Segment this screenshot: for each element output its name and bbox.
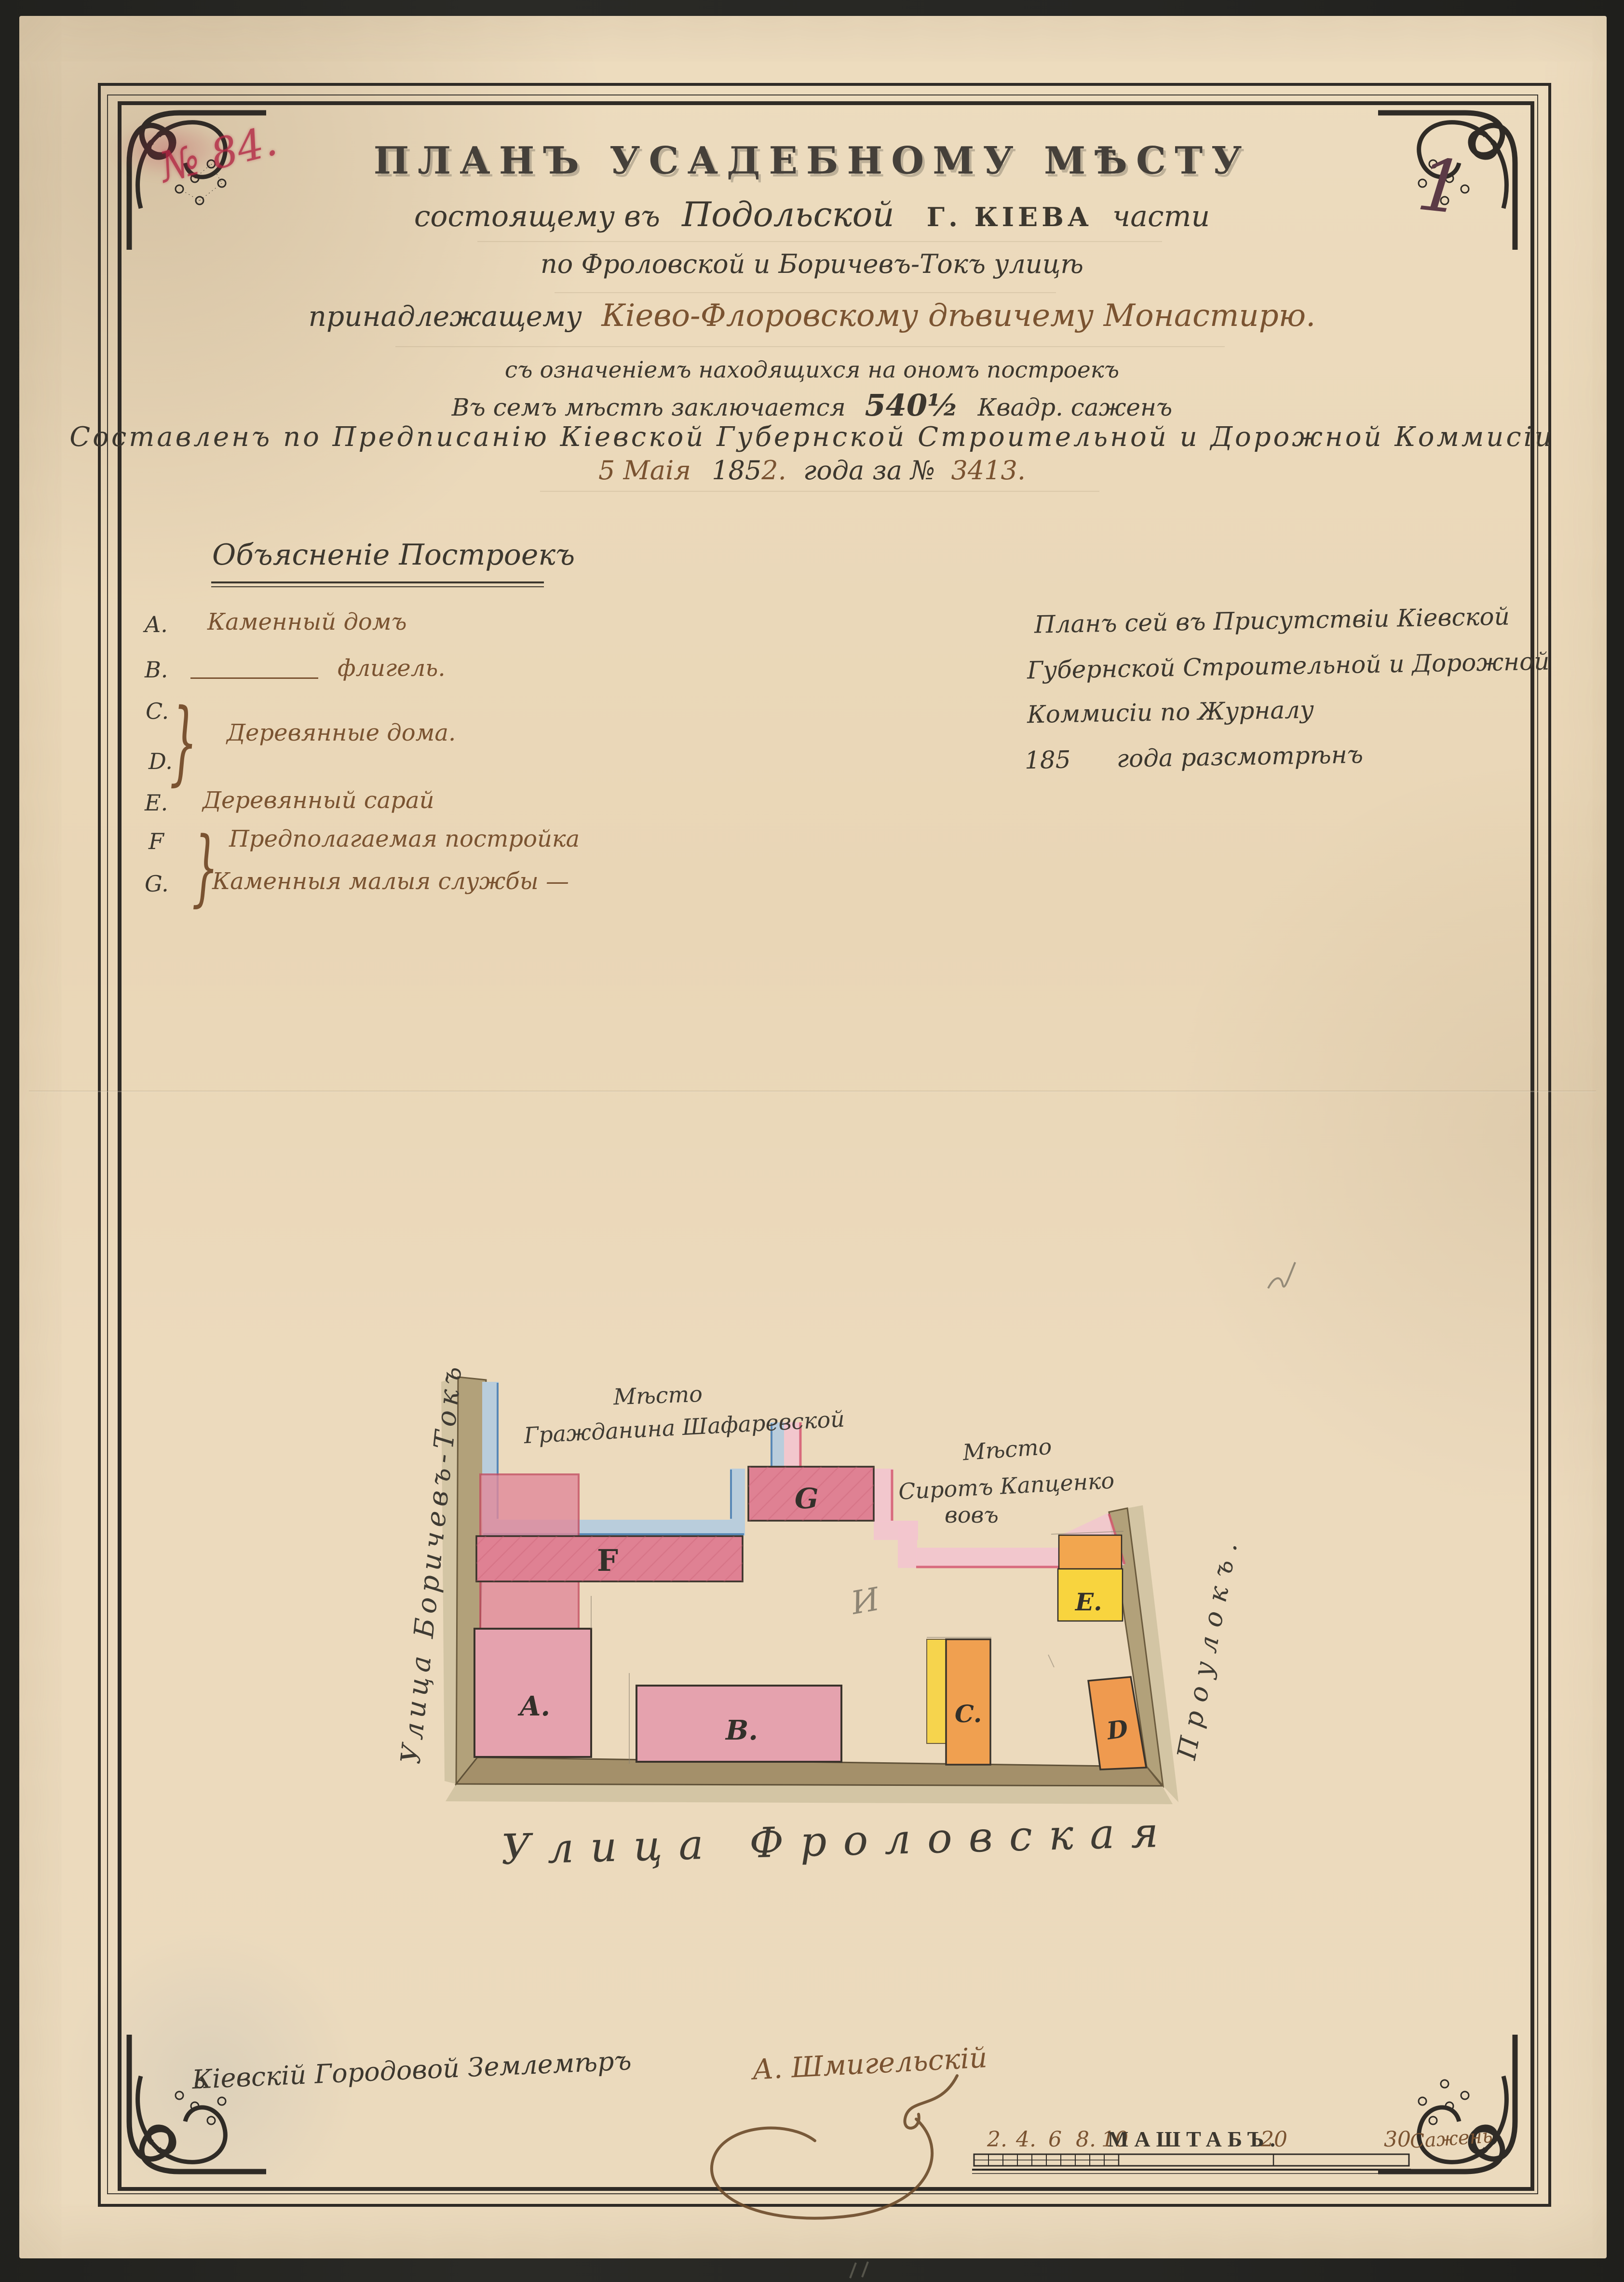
scale-unit: Сажень (1409, 2125, 1493, 2153)
building-label-F: F (597, 1543, 618, 1578)
signature-flourish (603, 2064, 998, 2228)
date-year2: 2. (761, 455, 786, 486)
loc-part: части (1112, 200, 1210, 233)
scale-tick-30: 30 (1384, 2127, 1411, 2152)
guide-line (555, 292, 1056, 293)
legend-letter-c: C. (146, 698, 169, 724)
review-note-line3: Коммисіи по Журналу (1027, 696, 1314, 729)
legend-letter-b: B. (145, 657, 168, 683)
date-number: 3413. (951, 455, 1026, 486)
neighbor-top-line1: Мѣсто (612, 1381, 703, 1410)
legend-letter-d: D. (149, 748, 173, 774)
building-label-B: B. (725, 1715, 758, 1746)
scanned-plan-document: № 84. 1 ПЛАНЪ УСАДЕБНОМУ МѢСТУ состоящем… (0, 0, 1624, 2282)
guide-line (477, 241, 1162, 242)
guide-line (540, 491, 1099, 492)
legend-text-a: Каменный домъ (207, 608, 407, 635)
guide-line (395, 346, 1225, 347)
scale-label: МАШТАБЪ. (1108, 2127, 1281, 2151)
area-value: 540½ (865, 388, 959, 423)
legend-heading: Объясненіе Построекъ (212, 538, 575, 572)
scale-tick-2: 2. (987, 2127, 1007, 2152)
page-title: ПЛАНЪ УСАДЕБНОМУ МѢСТУ (0, 139, 1624, 183)
neighbor-right-line3: вовъ (945, 1502, 999, 1528)
site-plan: A. B. C. D E. F G Мѣсто Гражданина Шафар… (386, 1254, 1302, 1890)
scale-tick-6: 6 (1048, 2127, 1062, 2152)
title-line-commission: Составленъ по Предписанію Кіевской Губер… (0, 421, 1624, 453)
street-label-right: Проулокъ. (1171, 1530, 1245, 1762)
area-pre: Въ семъ мѣстѣ заключается (452, 393, 846, 421)
legend-dash-b (190, 677, 318, 679)
title-line-note: съ означеніемъ находящихся на ономъ пост… (0, 357, 1624, 383)
legend-letter-e: E. (145, 790, 168, 816)
pencil-mark-i: И (848, 1580, 882, 1622)
title-line-owner: принадлежащему Кіево-Флоровскому дѣвичем… (0, 298, 1624, 334)
legend-underline (211, 581, 544, 587)
loc-city: Г. КІЕВА (927, 202, 1093, 232)
building-label-A: A. (517, 1690, 550, 1722)
area-unit: Квадр. саженъ (978, 393, 1173, 421)
legend-letter-f: F (149, 828, 164, 854)
fold-crease (29, 1091, 1596, 1092)
pencil-check-mark (1268, 1262, 1295, 1288)
building-label-D: D (1104, 1714, 1130, 1745)
date-year: 185 (712, 455, 761, 486)
street-shadow-bottom (446, 1784, 1173, 1804)
building-label-G: G (795, 1482, 819, 1515)
neighbor-right-line1: Мѣсто (961, 1433, 1053, 1466)
legend-letter-a: A. (145, 611, 168, 637)
building-E-orange (1059, 1535, 1122, 1569)
title-line-date: 5 Маія 1852. года за № 3413. (0, 455, 1624, 486)
legend-text-f: Предполагаемая постройка (229, 825, 580, 852)
title-line-location: состоящему въ Подольской Г. КІЕВА части (0, 195, 1624, 234)
scale-ruler (972, 2154, 1411, 2174)
building-label-E: E. (1074, 1588, 1102, 1616)
street-label-bottom: Улица Фроловская (501, 1808, 1176, 1874)
neighbor-right-line2: Сиротъ Капценко (898, 1467, 1115, 1504)
corner-flourish-bottom-left (122, 2035, 266, 2179)
date-day: 5 Маія (598, 455, 691, 486)
loc-district: Подольской (682, 195, 894, 234)
building-label-C: C. (955, 1700, 982, 1728)
review-note-line4: 185 года разсмотрѣнъ (1025, 741, 1364, 774)
scale-bar: 2. 4. 6 8. 10 20 30 МАШТАБЪ. Сажень (960, 2119, 1524, 2187)
owner-pre: принадлежащему (309, 300, 582, 333)
margin-fold-marks (846, 2259, 885, 2282)
legend-text-b: флигель. (338, 655, 446, 682)
legend-text-g: Каменныя малыя службы — (212, 868, 569, 895)
scale-tick-8: 8. (1076, 2127, 1096, 2152)
loc-pre: состоящему въ (414, 200, 660, 233)
legend-text-cd: Деревянные дома. (227, 719, 456, 746)
title-line-streets: по Фроловской и Боричевъ-Токъ улицѣ (0, 249, 1624, 279)
legend-brace-cd: } (170, 689, 197, 796)
building-C-yellow (927, 1639, 946, 1743)
legend-text-e: Деревянный сарай (203, 787, 434, 814)
title-line-area: Въ семъ мѣстѣ заключается 540½ Квадр. са… (0, 388, 1624, 423)
legend-letter-g: G. (145, 871, 169, 897)
owner-name: Кіево-Флоровскому дѣвичему Монастирю. (601, 298, 1315, 334)
date-mid: года за № (803, 455, 935, 486)
scale-tick-4: 4. (1015, 2127, 1036, 2152)
